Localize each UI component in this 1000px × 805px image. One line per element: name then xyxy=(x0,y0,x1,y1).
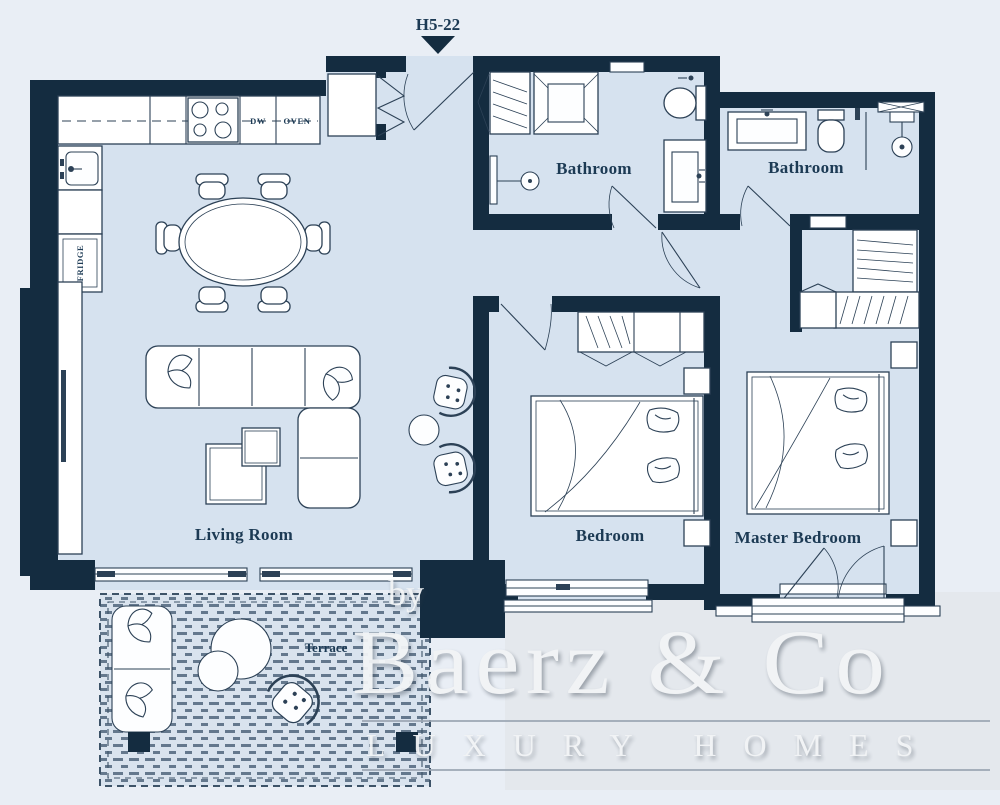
master-nightstand-top xyxy=(891,342,917,368)
watermark-brand: Baerz & Co xyxy=(352,616,891,708)
dishwasher-label: DW xyxy=(250,116,266,126)
terrace-table-small xyxy=(198,651,238,691)
oven-label: OVEN xyxy=(284,116,311,126)
room-label-bathroom-1: Bathroom xyxy=(556,159,632,178)
stove xyxy=(188,98,238,142)
watermark-tagline: LUXURY HOMES xyxy=(366,727,940,764)
room-label-living: Living Room xyxy=(195,525,293,544)
master-nightstand-bottom xyxy=(891,520,917,546)
kitchen-cabinet xyxy=(58,190,102,234)
wall-niche xyxy=(610,62,644,72)
hall-closet xyxy=(328,74,376,136)
bedroom-nightstand-top xyxy=(684,368,710,394)
vanity-1 xyxy=(664,140,706,212)
room-label-terrace: Terrace xyxy=(305,640,348,655)
fridge-label: FRIDGE xyxy=(75,245,85,282)
terrace-sofa xyxy=(112,605,172,732)
unit-label: H5-22 xyxy=(416,15,460,34)
entry-marker-icon xyxy=(421,36,455,54)
floor-plan-page: Terrace H5-22 xyxy=(0,0,1000,805)
closet-hanging-rail xyxy=(834,292,919,328)
valve-icon xyxy=(855,108,860,120)
master-bed xyxy=(747,372,889,514)
side-table xyxy=(409,415,439,445)
terrace-post-left xyxy=(128,732,150,752)
closet-sliding-door xyxy=(810,216,846,228)
bedroom-window xyxy=(504,580,652,612)
dining-table xyxy=(179,198,307,286)
room-label-master: Master Bedroom xyxy=(735,528,862,547)
closet-shelves xyxy=(853,230,917,292)
bedroom-bed xyxy=(531,396,703,516)
room-label-bedroom: Bedroom xyxy=(576,526,645,545)
kitchen-sink xyxy=(58,146,102,190)
bedroom-nightstand-bottom xyxy=(684,520,710,546)
towel-hook-icon xyxy=(689,76,694,81)
toilet-2 xyxy=(818,110,844,152)
watermark-by: by xyxy=(388,572,424,614)
shower-1 xyxy=(534,72,598,134)
watermark-rule-bottom xyxy=(362,769,990,771)
toilet-1 xyxy=(664,86,706,120)
tv xyxy=(61,370,66,462)
vanity-2 xyxy=(728,110,806,150)
room-label-bathroom-2: Bathroom xyxy=(768,158,844,177)
watermark-rule-top xyxy=(362,720,990,722)
